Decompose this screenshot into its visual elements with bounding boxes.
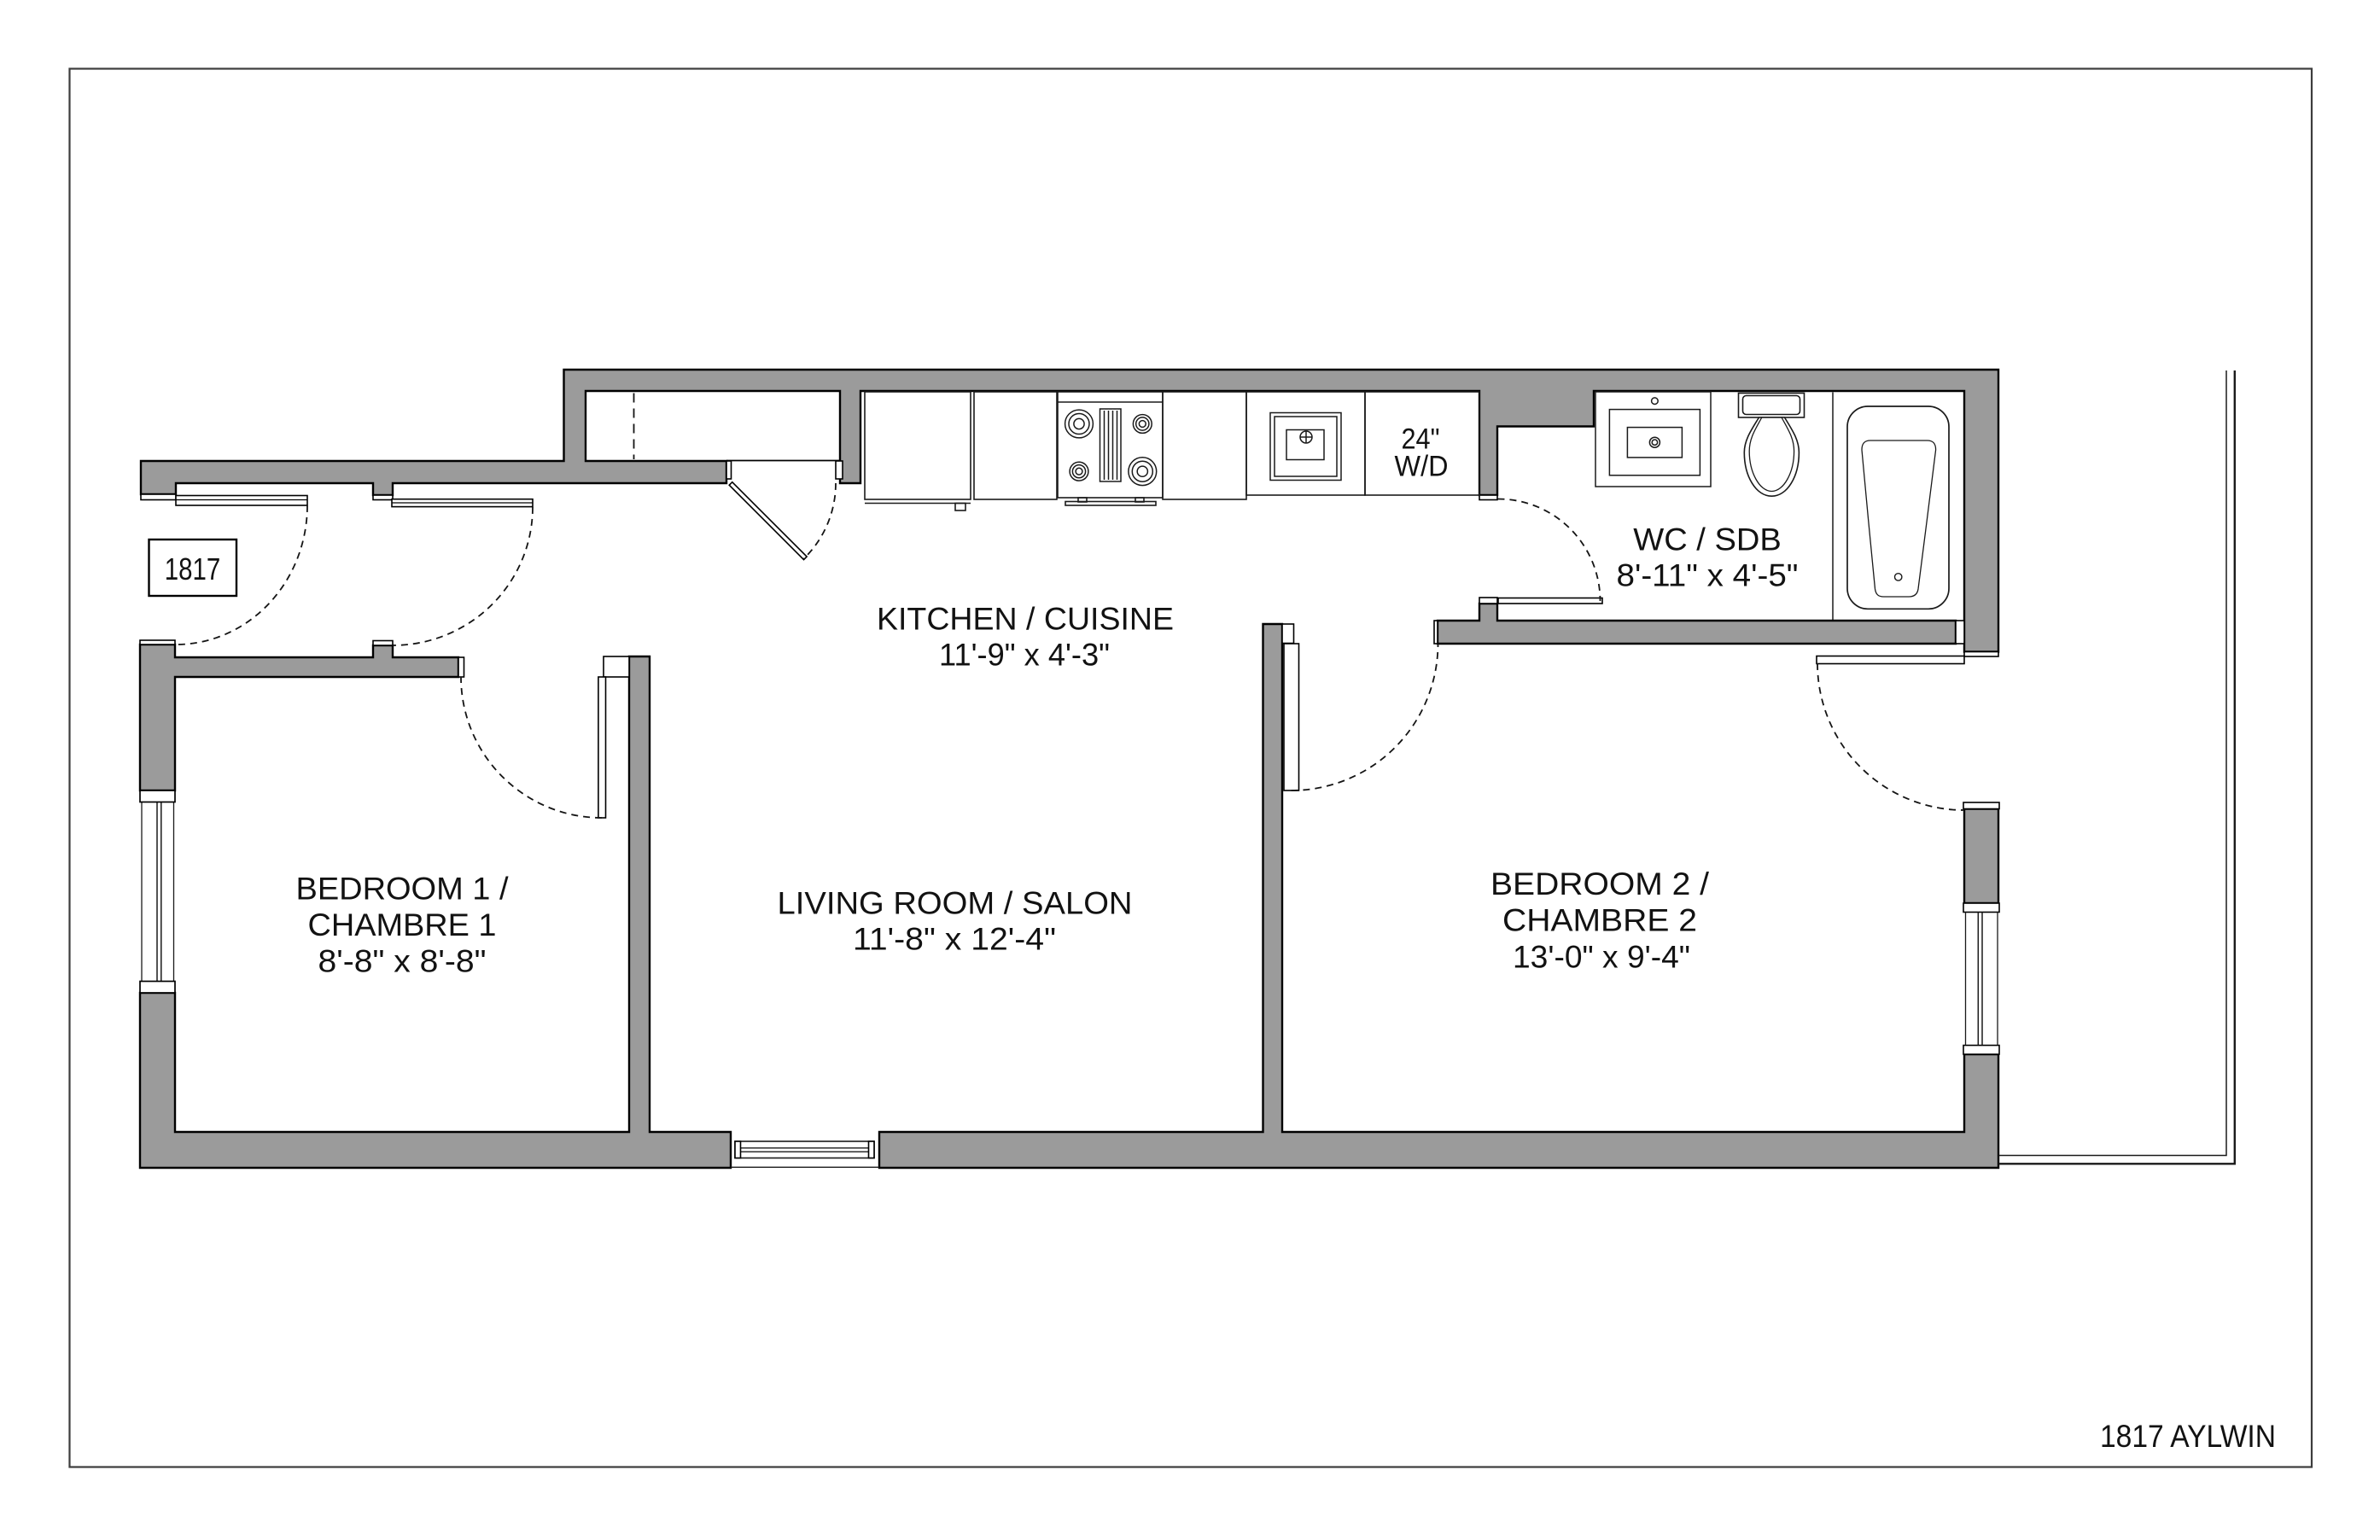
svg-text:BEDROOM 1 /: BEDROOM 1 / xyxy=(296,871,510,907)
svg-text:1817: 1817 xyxy=(165,551,221,586)
svg-text:CHAMBRE 2: CHAMBRE 2 xyxy=(1502,901,1697,937)
svg-text:W/D: W/D xyxy=(1395,450,1449,482)
svg-text:CHAMBRE 1: CHAMBRE 1 xyxy=(308,907,497,942)
svg-text:LIVING ROOM / SALON: LIVING ROOM / SALON xyxy=(778,885,1133,921)
svg-text:13'-0" x 9'-4": 13'-0" x 9'-4" xyxy=(1513,939,1690,975)
svg-text:KITCHEN / CUISINE: KITCHEN / CUISINE xyxy=(877,601,1174,637)
svg-text:WC / SDB: WC / SDB xyxy=(1633,521,1782,557)
svg-text:BEDROOM 2 /: BEDROOM 2 / xyxy=(1490,866,1710,901)
svg-text:8'-8" x 8'-8": 8'-8" x 8'-8" xyxy=(318,943,487,979)
svg-text:11'-8" x 12'-4": 11'-8" x 12'-4" xyxy=(853,921,1056,957)
svg-text:8'-11" x 4'-5": 8'-11" x 4'-5" xyxy=(1617,557,1799,592)
svg-text:11'-9" x 4'-3": 11'-9" x 4'-3" xyxy=(939,637,1110,673)
svg-text:1817 AYLWIN: 1817 AYLWIN xyxy=(2100,1418,2276,1454)
